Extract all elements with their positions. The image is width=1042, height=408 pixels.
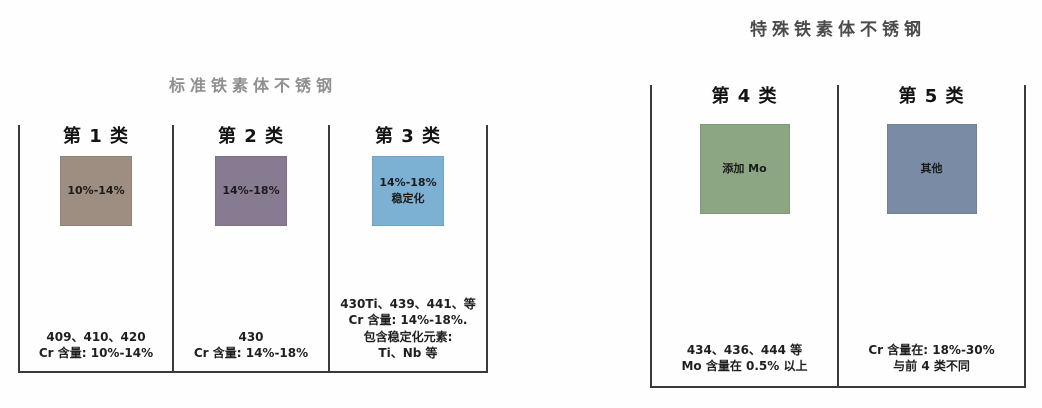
category-4-header: 第 4 类 — [711, 86, 777, 108]
category-3-cell: 第 3 类 14%-18% 稳定化 430Ti、439、441、等 Cr 含量:… — [328, 125, 488, 371]
note-line: Mo 含量在 0.5% 以上 — [681, 358, 807, 374]
note-line: Cr 含量: 14%-18%. — [340, 312, 475, 328]
note-line: 430 — [194, 329, 308, 345]
category-1-chromium-box: 10%-14% — [60, 156, 132, 226]
category-4-cell: 第 4 类 添加 Mo 434、436、444 等 Mo 含量在 0.5% 以上 — [650, 85, 837, 386]
category-5-cell: 第 5 类 其他 Cr 含量在: 18%-30% 与前 4 类不同 — [837, 85, 1026, 386]
category-3-chromium-box: 14%-18% 稳定化 — [372, 156, 444, 226]
note-line: 与前 4 类不同 — [868, 358, 994, 374]
special-group-title: 特殊铁素体不锈钢 — [650, 15, 1026, 40]
note-line: Ti、Nb 等 — [340, 345, 475, 361]
category-5-header: 第 5 类 — [898, 86, 964, 108]
note-line: 包含稳定化元素: — [340, 329, 475, 345]
category-2-chromium-box: 14%-18% — [215, 156, 287, 226]
category-3-notes: 430Ti、439、441、等 Cr 含量: 14%-18%. 包含稳定化元素:… — [340, 296, 475, 371]
ferritic-stainless-steel-diagram: 标准铁素体不锈钢 第 1 类 10%-14% 409、410、420 Cr 含量… — [0, 0, 1042, 408]
category-2-cell: 第 2 类 14%-18% 430 Cr 含量: 14%-18% — [172, 125, 328, 371]
note-line: 430Ti、439、441、等 — [340, 296, 475, 312]
note-line: 409、410、420 — [39, 329, 153, 345]
category-1-header: 第 1 类 — [63, 126, 129, 148]
category-1-notes: 409、410、420 Cr 含量: 10%-14% — [39, 329, 153, 371]
standard-group-title: 标准铁素体不锈钢 — [18, 72, 488, 96]
standard-group-panel: 第 1 类 10%-14% 409、410、420 Cr 含量: 10%-14%… — [18, 125, 488, 373]
category-5-other-box: 其他 — [887, 124, 977, 214]
category-2-notes: 430 Cr 含量: 14%-18% — [194, 329, 308, 371]
category-3-header: 第 3 类 — [375, 126, 441, 148]
note-line: 434、436、444 等 — [681, 342, 807, 358]
category-4-notes: 434、436、444 等 Mo 含量在 0.5% 以上 — [681, 342, 807, 386]
category-2-header: 第 2 类 — [218, 126, 284, 148]
note-line: Cr 含量在: 18%-30% — [868, 342, 994, 358]
category-5-notes: Cr 含量在: 18%-30% 与前 4 类不同 — [868, 342, 994, 386]
note-line: Cr 含量: 10%-14% — [39, 345, 153, 361]
special-group-panel: 第 4 类 添加 Mo 434、436、444 等 Mo 含量在 0.5% 以上… — [650, 85, 1026, 388]
category-4-molybdenum-box: 添加 Mo — [700, 124, 790, 214]
note-line: Cr 含量: 14%-18% — [194, 345, 308, 361]
category-1-cell: 第 1 类 10%-14% 409、410、420 Cr 含量: 10%-14% — [18, 125, 172, 371]
